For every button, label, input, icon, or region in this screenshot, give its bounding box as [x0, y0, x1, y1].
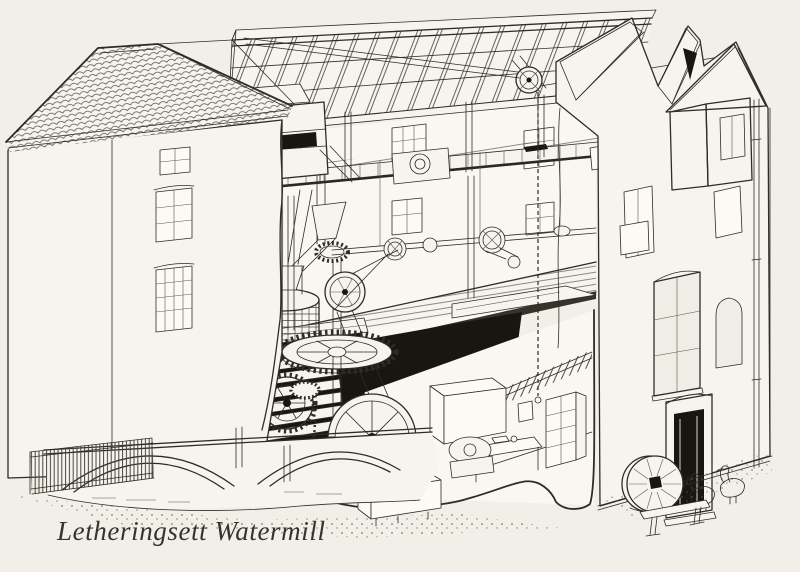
left-wall	[8, 120, 282, 478]
grain-bin	[430, 378, 506, 444]
left-wing	[6, 40, 294, 478]
watermill-cutaway-illustration: Letheringsett Watermill	[0, 0, 800, 572]
loading-hatch	[714, 186, 742, 238]
small-window	[620, 221, 649, 255]
roller-mill	[392, 148, 450, 184]
illustration-canvas: Letheringsett Watermill	[0, 0, 800, 572]
arched-niche	[716, 298, 742, 368]
auxiliary-engine	[449, 437, 494, 478]
arched-sash-window	[652, 271, 703, 401]
leaning-millstone	[622, 456, 683, 513]
stone-nut-gear	[291, 382, 319, 398]
shelf-rack	[546, 392, 586, 468]
wall-picture	[518, 401, 533, 422]
caption: Letheringsett Watermill	[56, 516, 326, 546]
